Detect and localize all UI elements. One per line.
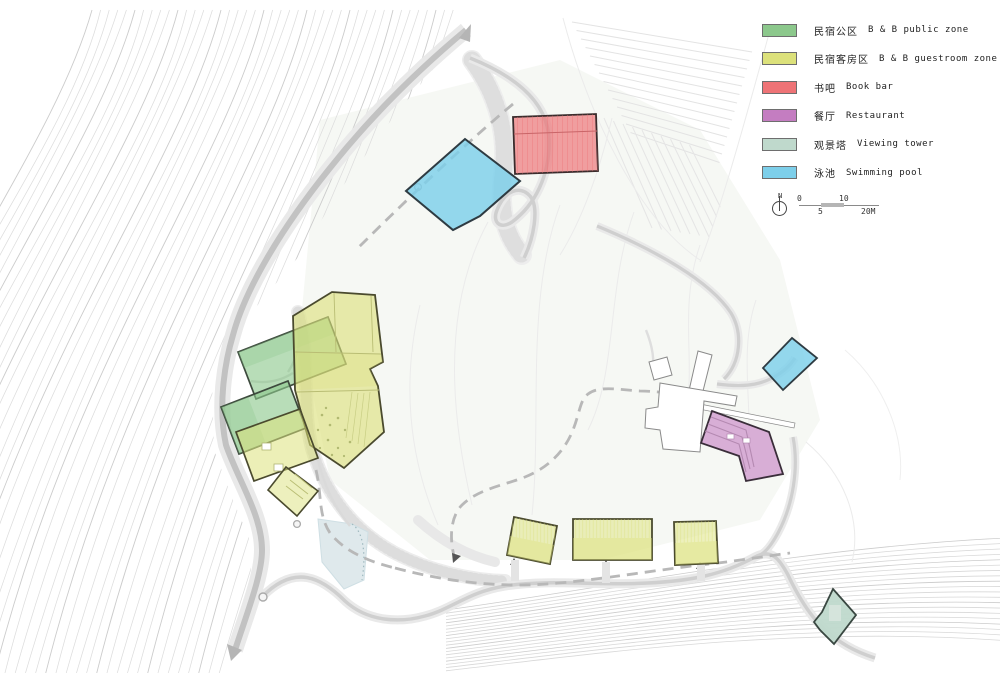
road-node bbox=[259, 593, 267, 601]
contour-line bbox=[0, 10, 135, 673]
legend-swatch-pool bbox=[762, 166, 797, 179]
legend-swatch-restaurant bbox=[762, 109, 797, 122]
pond bbox=[318, 519, 368, 589]
legend: 民宿公区 B & B public zone 民宿客房区 B & B guest… bbox=[762, 16, 997, 187]
legend-label-en: Book bar bbox=[846, 82, 893, 92]
building-guestroom-s3 bbox=[674, 521, 718, 565]
legend-label-zh: 民宿客房区 bbox=[814, 51, 869, 66]
scale-tick-10: 10 bbox=[839, 194, 849, 203]
legend-swatch-public bbox=[762, 24, 797, 37]
contour-line bbox=[446, 607, 1000, 651]
scale-tick-5: 5 bbox=[818, 207, 823, 216]
building-guestroom-s2 bbox=[573, 519, 652, 560]
legend-item-guestroom: 民宿客房区 B & B guestroom zone bbox=[762, 45, 997, 74]
scale-tick-20m: 20M bbox=[861, 207, 875, 216]
legend-item-tower: 观景塔 Viewing tower bbox=[762, 130, 997, 159]
north-circle bbox=[772, 201, 787, 216]
contour-line bbox=[0, 10, 247, 673]
legend-label-en: Restaurant bbox=[846, 111, 905, 121]
site-plan-sheet: 民宿公区 B & B public zone 民宿客房区 B & B guest… bbox=[0, 0, 1000, 673]
legend-label-zh: 观景塔 bbox=[814, 137, 847, 152]
scale-segment bbox=[821, 203, 844, 207]
contour-line bbox=[0, 10, 238, 673]
legend-item-restaurant: 餐厅 Restaurant bbox=[762, 102, 997, 131]
contour-line bbox=[0, 10, 118, 673]
terrace-line bbox=[581, 39, 747, 69]
terrace-line bbox=[572, 22, 752, 52]
legend-swatch-bookbar bbox=[762, 81, 797, 94]
legend-item-public: 民宿公区 B & B public zone bbox=[762, 16, 997, 45]
legend-label-zh: 餐厅 bbox=[814, 108, 836, 123]
building-book-bar bbox=[513, 114, 598, 174]
legend-label-zh: 泳池 bbox=[814, 165, 836, 180]
building-guestroom-s1 bbox=[507, 517, 557, 564]
legend-label-zh: 书吧 bbox=[814, 80, 836, 95]
legend-label-en: Viewing tower bbox=[857, 139, 934, 149]
legend-label-en: Swimming pool bbox=[846, 168, 923, 178]
scale-tick-0: 0 bbox=[797, 194, 802, 203]
legend-label-en: B & B guestroom zone bbox=[879, 54, 997, 64]
contour-line bbox=[0, 10, 109, 673]
terrace-line bbox=[577, 31, 750, 61]
contour-line bbox=[0, 10, 195, 673]
contour-line bbox=[0, 10, 221, 673]
contour-line bbox=[0, 10, 187, 673]
legend-swatch-guestroom bbox=[762, 52, 797, 65]
legend-item-bookbar: 书吧 Book bar bbox=[762, 73, 997, 102]
contour-line bbox=[0, 10, 144, 673]
contour-line bbox=[0, 10, 178, 673]
north-arrow-icon: N bbox=[770, 194, 792, 222]
scale-bar: 0 10 5 20M bbox=[797, 194, 893, 220]
legend-label-zh: 民宿公区 bbox=[814, 23, 858, 38]
building-guestroom-annex bbox=[268, 467, 318, 516]
legend-item-pool: 泳池 Swimming pool bbox=[762, 159, 997, 188]
building-viewing-tower bbox=[814, 589, 856, 644]
contour-line bbox=[446, 627, 1000, 665]
road-node bbox=[294, 521, 301, 528]
legend-swatch-tower bbox=[762, 138, 797, 151]
terrace-line bbox=[586, 48, 745, 78]
legend-label-en: B & B public zone bbox=[868, 25, 969, 35]
terrace-line bbox=[590, 56, 742, 86]
